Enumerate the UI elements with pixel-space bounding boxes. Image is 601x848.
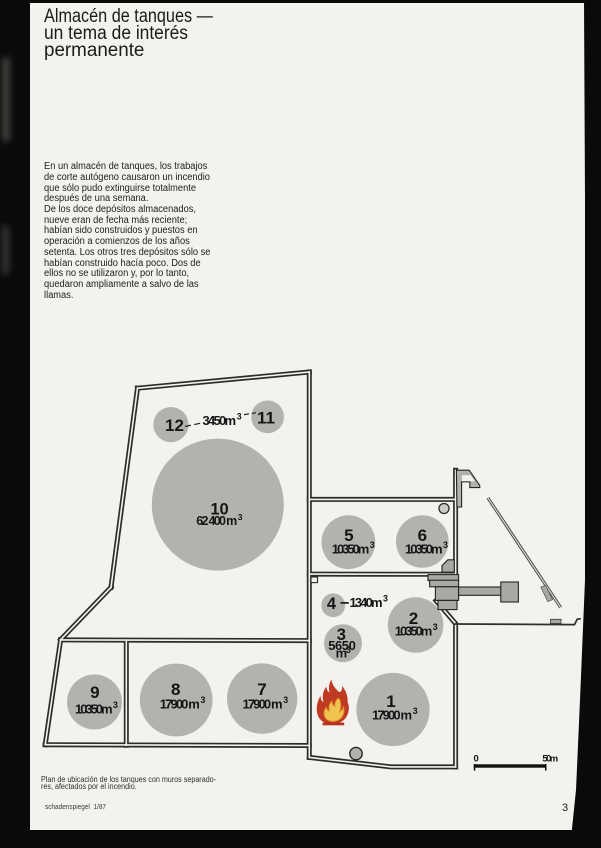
- svg-text:3: 3: [443, 540, 448, 550]
- svg-text:3: 3: [413, 706, 418, 716]
- svg-text:3450m: 3450m: [203, 413, 237, 428]
- svg-text:0: 0: [474, 753, 479, 764]
- svg-text:4: 4: [327, 595, 337, 613]
- svg-text:3: 3: [433, 622, 438, 632]
- svg-text:10350m: 10350m: [395, 623, 433, 638]
- svg-text:50m: 50m: [542, 753, 558, 764]
- svg-text:3: 3: [383, 594, 388, 604]
- svg-text:9: 9: [90, 683, 99, 702]
- svg-text:3: 3: [283, 695, 288, 705]
- svg-text:3: 3: [238, 512, 243, 522]
- svg-text:17900 m: 17900 m: [243, 696, 283, 711]
- svg-text:10350m: 10350m: [75, 701, 113, 716]
- svg-text:3: 3: [346, 645, 351, 655]
- svg-text:17900 m: 17900 m: [372, 708, 412, 723]
- svg-text:10350m: 10350m: [405, 541, 443, 556]
- svg-text:3: 3: [113, 700, 118, 710]
- svg-text:1340m: 1340m: [350, 595, 383, 610]
- svg-text:62 400 m: 62 400 m: [196, 514, 237, 528]
- svg-text:10350m: 10350m: [332, 541, 370, 556]
- svg-text:3: 3: [370, 540, 375, 550]
- svg-text:17900 m: 17900 m: [160, 696, 200, 711]
- svg-text:3: 3: [237, 411, 242, 421]
- svg-text:12: 12: [165, 416, 184, 435]
- svg-text:11: 11: [257, 409, 275, 428]
- svg-text:3: 3: [201, 695, 206, 705]
